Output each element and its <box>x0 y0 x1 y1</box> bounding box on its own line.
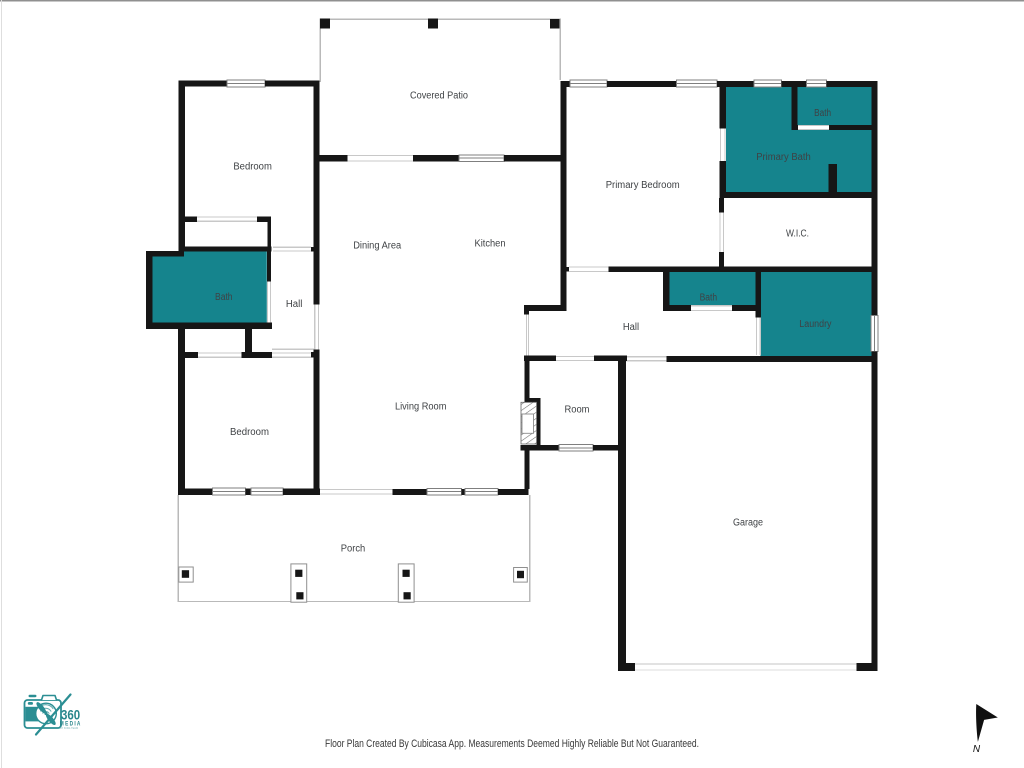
svg-text:Dining Area: Dining Area <box>353 241 401 252</box>
svg-text:Porch: Porch <box>341 544 366 555</box>
svg-text:Covered Patio: Covered Patio <box>410 90 468 101</box>
svg-text:Kitchen: Kitchen <box>475 239 506 250</box>
svg-text:Bath: Bath <box>814 108 831 119</box>
svg-text:Living Room: Living Room <box>395 402 447 413</box>
svg-text:Hall: Hall <box>286 299 303 310</box>
svg-text:Bath: Bath <box>215 292 233 303</box>
svg-text:Laundry: Laundry <box>799 319 831 330</box>
svg-text:N: N <box>973 744 981 755</box>
svg-text:Hall: Hall <box>623 322 639 333</box>
svg-text:Garage: Garage <box>733 518 763 529</box>
svg-text:BY KODL TEAM: BY KODL TEAM <box>60 726 78 730</box>
svg-text:Floor Plan Created By Cubicasa: Floor Plan Created By Cubicasa App. Meas… <box>325 738 699 750</box>
svg-text:Bath: Bath <box>700 293 718 304</box>
svg-text:W.I.C.: W.I.C. <box>786 228 809 239</box>
svg-text:Primary Bedroom: Primary Bedroom <box>606 180 680 191</box>
svg-text:Bedroom: Bedroom <box>233 162 272 173</box>
svg-text:Bedroom: Bedroom <box>230 427 269 438</box>
svg-text:Room: Room <box>565 405 590 416</box>
svg-text:Primary Bath: Primary Bath <box>756 152 811 163</box>
